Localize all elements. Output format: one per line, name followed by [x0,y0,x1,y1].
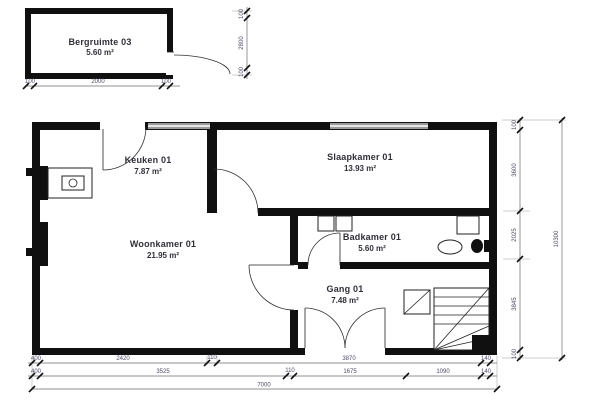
dim-label: 2420 [116,356,130,362]
dim-label: 10300 [554,230,560,247]
dim-label: 100 [161,79,172,85]
dim-label: 100 [239,8,245,19]
badkamer-cabinet-1 [318,216,334,231]
dim-right-total: 10300 [554,117,565,361]
dim-label: 3870 [342,356,356,362]
dim-label: 100 [512,348,518,359]
shower-tray [457,216,479,234]
dim-label: 1675 [343,369,357,375]
wall-woonkamer-gang [290,310,298,355]
dim-label: 100 [239,66,245,77]
wall-keuken-slaapkamer [207,129,217,213]
room-area-woonkamer: 21.95 m² [147,251,179,260]
dim-label: 2800 [239,36,245,50]
dim-label: 400 [31,356,42,362]
dim-label: 100 [512,119,518,130]
wall-pier-bottom [40,222,48,266]
wall-slaapkamer-badkamer [258,208,497,216]
dim-label: 110 [207,355,217,361]
main-building: Keuken 01 7.87 m² Slaapkamer 01 13.93 m²… [26,122,497,355]
toilet-icon [471,239,483,253]
room-area-slaapkamer: 13.93 m² [344,164,376,173]
room-area-gang: 7.48 m² [331,296,359,305]
exterior-stub-bottom [26,248,32,256]
wall-badkamer-gang-right [340,262,497,269]
dim-label: 3525 [156,369,170,375]
room-name-keuken: Keuken 01 [125,155,172,165]
washbasin-icon [438,240,462,254]
kitchen-sink [62,176,84,190]
storage-dim-right: 100 2800 100 [232,7,252,79]
room-name-badkamer: Badkamer 01 [343,232,401,242]
badkamer-cabinet-2 [336,216,352,231]
dim-label: 110 [285,368,295,374]
dim-label: 2000 [91,79,105,85]
storage-dim-bottom: 100 2000 100 [23,79,180,89]
corner-block [472,335,497,355]
floor-plan-page: Bergruimte 03 5.60 m² 100 2000 100 100 2… [0,0,600,400]
dim-label: 2025 [512,228,518,242]
dim-label: 3845 [512,297,518,311]
main-interior [40,130,489,348]
keuken-door-opening [100,122,145,130]
exterior-stub-top [26,168,32,176]
room-name-gang: Gang 01 [327,284,364,294]
window-slaapkamer [330,123,428,129]
dim-bottom-total: 7000 [29,383,500,393]
room-name-woonkamer: Woonkamer 01 [130,239,196,249]
room-area-badkamer: 5.60 m² [358,244,386,253]
room-name-slaapkamer: Slaapkamer 01 [327,152,393,162]
window-keuken [148,123,210,129]
dim-label: 140 [481,369,492,375]
dim-label: 7000 [257,383,271,389]
room-area-keuken: 7.87 m² [134,167,162,176]
toilet-cistern [484,240,489,252]
wall-woonkamer-badkamer [290,216,298,265]
dim-label: 3600 [512,163,518,177]
dim-label: 1090 [436,369,450,375]
entrance-opening [305,348,385,355]
storage-area: 5.60 m² [86,48,114,57]
storage-door-arc [174,55,230,74]
dim-label: 140 [481,356,492,362]
storage-name: Bergruimte 03 [68,37,131,47]
storage-room: Bergruimte 03 5.60 m² [25,8,230,79]
dim-label: 100 [25,79,36,85]
wall-pier-top [40,166,48,200]
storage-door-opening [166,52,174,75]
dim-bottom-row2: 400 3525 110 1675 1090 140 [28,368,497,379]
wall-badkamer-gang-left [298,262,308,269]
dim-label: 400 [31,369,42,375]
floor-plan-svg: Bergruimte 03 5.60 m² 100 2000 100 100 2… [0,0,600,400]
